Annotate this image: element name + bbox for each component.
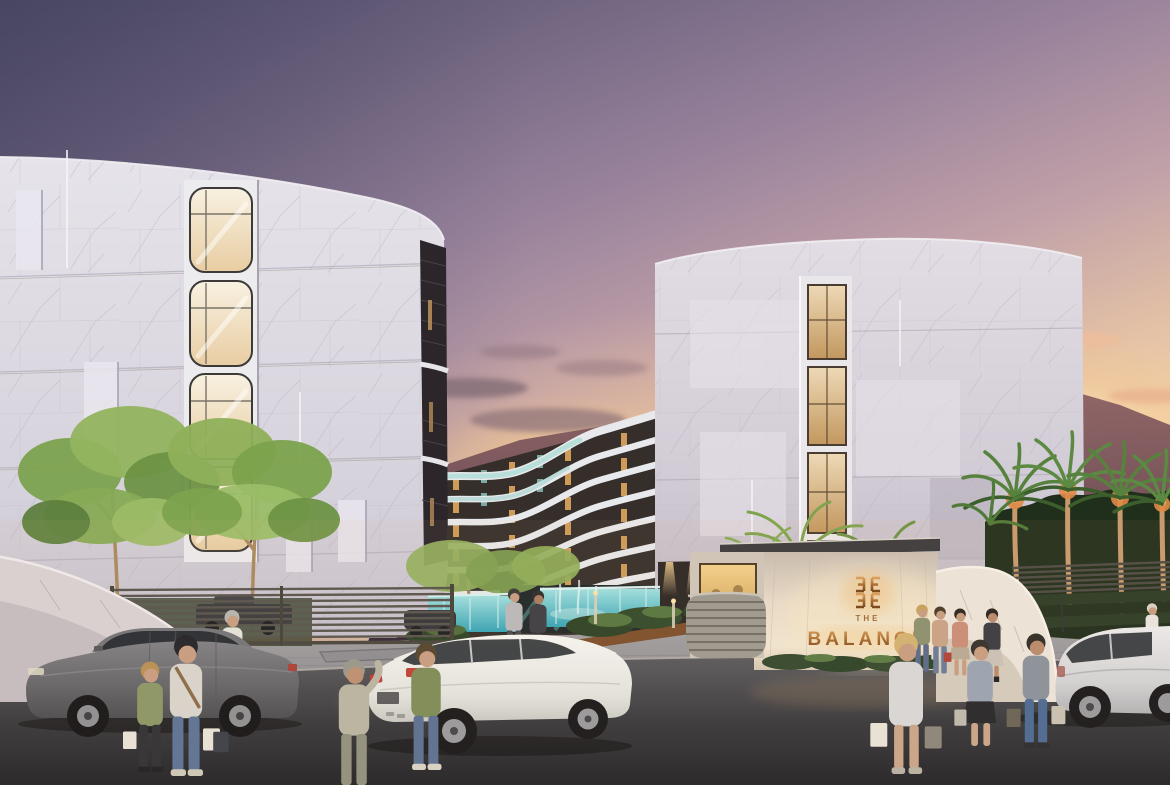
- building-left-corner-strip: [420, 240, 448, 566]
- rendering-canvas: Twilight architectural rendering of The …: [0, 0, 1170, 785]
- warm-haze: [0, 520, 1170, 785]
- scene-svg: Twilight architectural rendering of The …: [0, 0, 1170, 785]
